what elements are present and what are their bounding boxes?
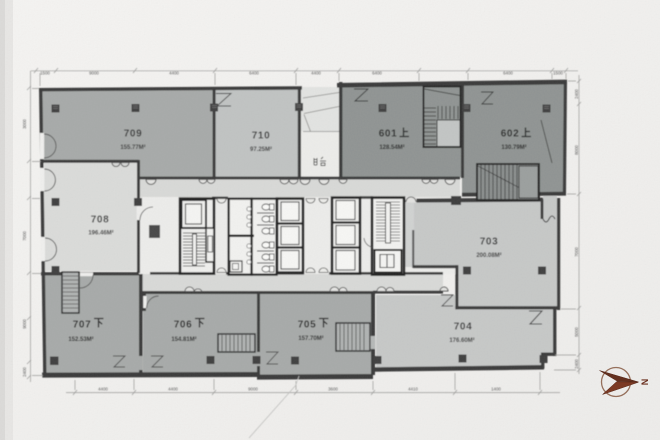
svg-text:N: N	[640, 379, 650, 386]
